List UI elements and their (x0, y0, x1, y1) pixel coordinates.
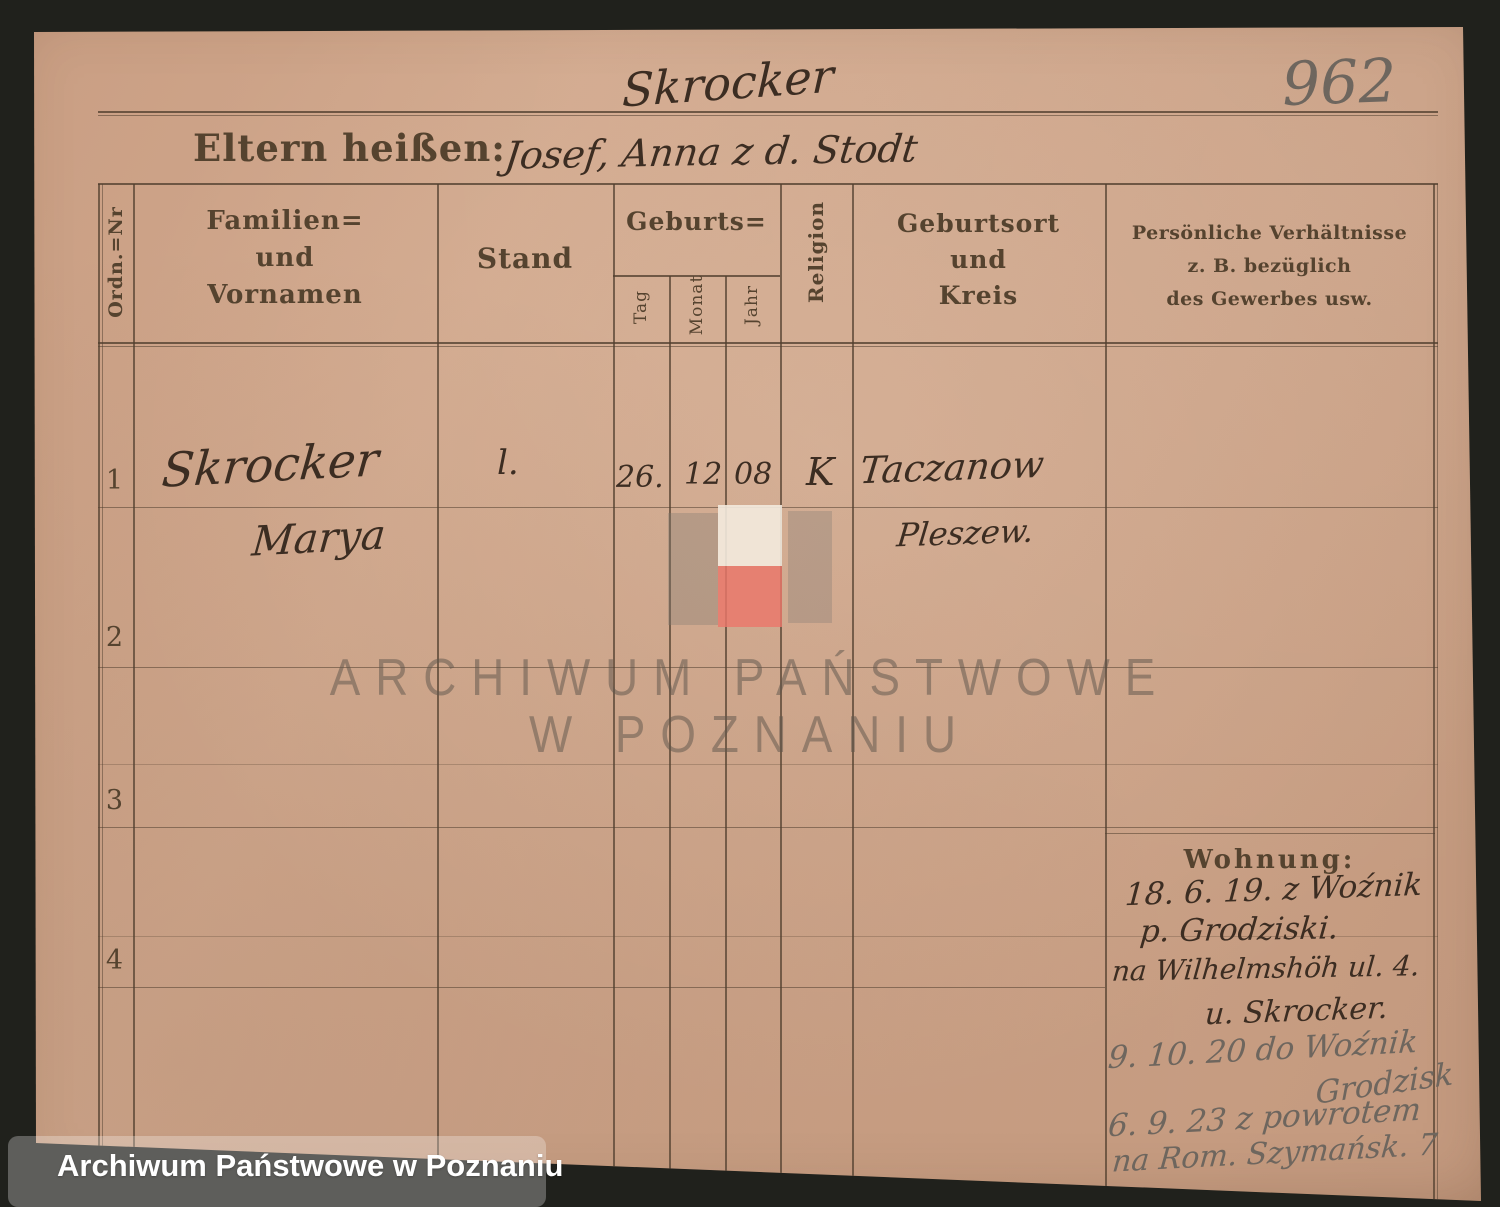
col-header-name: Familien= und Vornamen (133, 203, 437, 314)
rule-top-a (98, 111, 1438, 113)
table-vline-outer-right-b (1437, 184, 1438, 1200)
col-header-pers-line2: z. B. bezüglich (1105, 250, 1434, 283)
row-number-4: 4 (98, 945, 132, 976)
col-header-pers-line1: Persönliche Verhältnisse (1105, 217, 1434, 250)
handwritten-surname-top: Skrocker (621, 48, 834, 117)
wohnung-ink-line3: na Wilhelmshöh ul. 4. (1111, 949, 1421, 987)
col-header-pers-line3: des Gewerbes usw. (1105, 283, 1434, 316)
header-bottom-a (98, 342, 1438, 344)
col-header-ort: Geburtsort und Kreis (852, 206, 1105, 314)
col-header-religion: Religion (803, 192, 829, 312)
archive-caption: Archiwum Państwowe w Poznaniu (57, 1148, 563, 1184)
row1-kreis: Pleszew. (895, 512, 1036, 555)
col-header-jahr: Jahr (740, 265, 764, 345)
rule-top-b (98, 115, 1438, 116)
row1-religion: K (806, 450, 834, 494)
handwritten-parents: Josef, Anna z d. Stodt (502, 126, 920, 177)
col-header-geburts: Geburts= (613, 207, 780, 236)
col-header-monat: Monat (685, 265, 709, 345)
row-number-3: 3 (98, 785, 132, 816)
col-header-ort-line1: Geburtsort (852, 206, 1105, 242)
rule-parents (98, 183, 1438, 185)
row3-divider (98, 827, 1438, 828)
overlay-white-square (718, 505, 782, 566)
row1-firstname: Marya (250, 510, 388, 565)
overlay-gray-strip-right (788, 511, 832, 623)
col-header-name-line2: und (133, 240, 437, 277)
header-bottom-b (98, 346, 1438, 347)
col-header-name-line1: Familien= (133, 203, 437, 240)
row-number-1: 1 (98, 465, 132, 496)
wohnung-top-rule-b (1105, 833, 1435, 834)
watermark-line1: ARCHIWUM PAŃSTWOWE (90, 648, 1410, 708)
registration-card-paper: Skrocker 962 Eltern heißen: Josef, Anna … (0, 0, 1500, 1207)
row1-surname: Skrocker (160, 432, 381, 499)
row1-geburtsort: Taczanow (858, 443, 1046, 493)
overlay-gray-strip-left (668, 513, 718, 625)
archive-number-pencil: 962 (1281, 46, 1398, 120)
col-header-tag: Tag (629, 267, 653, 347)
parents-label: Eltern heißen: (193, 126, 506, 170)
col-header-ort-line3: Kreis (852, 278, 1105, 314)
row1-tag: 26. (616, 460, 664, 495)
col-header-stand: Stand (437, 242, 613, 275)
overlay-red-square (718, 566, 782, 627)
wohnung-ink-line2: p. Grodziski. (1138, 910, 1339, 950)
scanned-archive-photo: Skrocker 962 Eltern heißen: Josef, Anna … (0, 0, 1500, 1207)
row1-monat: 12 (684, 457, 722, 492)
col-header-name-line3: Vornamen (133, 277, 437, 314)
col-header-persoenliche: Persönliche Verhältnisse z. B. bezüglich… (1105, 217, 1434, 316)
col-header-ort-line2: und (852, 242, 1105, 278)
watermark-line2: W POZNANIU (90, 705, 1410, 765)
row1-stand: l. (497, 443, 519, 483)
col-header-ordn-nr: Ordn.=Nr (101, 192, 131, 332)
row1-jahr: 08 (734, 457, 772, 492)
table-vline-outer-right-a (1433, 184, 1435, 1200)
row4-divider (98, 987, 1105, 988)
